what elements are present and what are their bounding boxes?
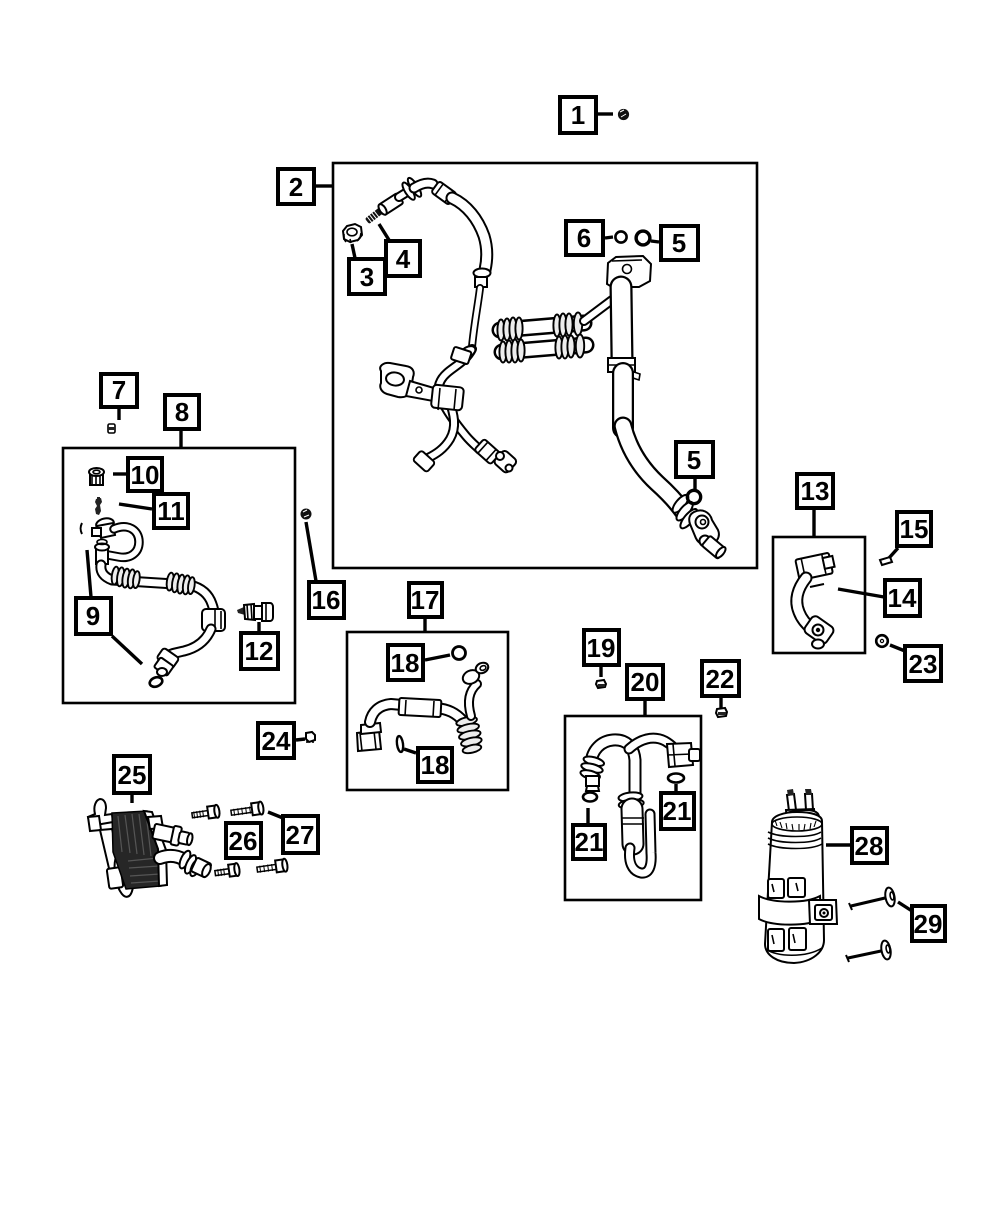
svg-text:23: 23 bbox=[909, 649, 938, 679]
svg-text:1: 1 bbox=[571, 100, 585, 130]
svg-text:18: 18 bbox=[391, 648, 420, 678]
svg-text:5: 5 bbox=[687, 445, 701, 475]
svg-text:17: 17 bbox=[411, 585, 440, 615]
svg-text:6: 6 bbox=[577, 223, 591, 253]
svg-text:21: 21 bbox=[663, 796, 692, 826]
svg-text:28: 28 bbox=[855, 831, 884, 861]
svg-text:8: 8 bbox=[175, 397, 189, 427]
svg-text:11: 11 bbox=[157, 496, 185, 526]
svg-text:26: 26 bbox=[229, 826, 258, 856]
svg-text:9: 9 bbox=[86, 601, 100, 631]
svg-text:2: 2 bbox=[289, 172, 303, 202]
svg-text:20: 20 bbox=[631, 667, 660, 697]
svg-text:24: 24 bbox=[262, 726, 291, 756]
svg-text:4: 4 bbox=[396, 244, 411, 274]
svg-text:13: 13 bbox=[801, 476, 830, 506]
svg-text:16: 16 bbox=[312, 585, 341, 615]
svg-text:12: 12 bbox=[245, 636, 274, 666]
svg-text:10: 10 bbox=[131, 460, 160, 490]
svg-text:25: 25 bbox=[118, 760, 147, 790]
svg-text:22: 22 bbox=[706, 664, 735, 694]
svg-text:19: 19 bbox=[587, 633, 616, 663]
svg-text:18: 18 bbox=[421, 750, 450, 780]
svg-text:15: 15 bbox=[900, 514, 929, 544]
svg-text:21: 21 bbox=[575, 827, 604, 857]
svg-text:7: 7 bbox=[112, 375, 126, 405]
svg-text:27: 27 bbox=[286, 820, 315, 850]
svg-text:14: 14 bbox=[888, 583, 917, 613]
svg-text:5: 5 bbox=[672, 228, 686, 258]
svg-text:29: 29 bbox=[914, 909, 943, 939]
svg-text:3: 3 bbox=[360, 262, 374, 292]
